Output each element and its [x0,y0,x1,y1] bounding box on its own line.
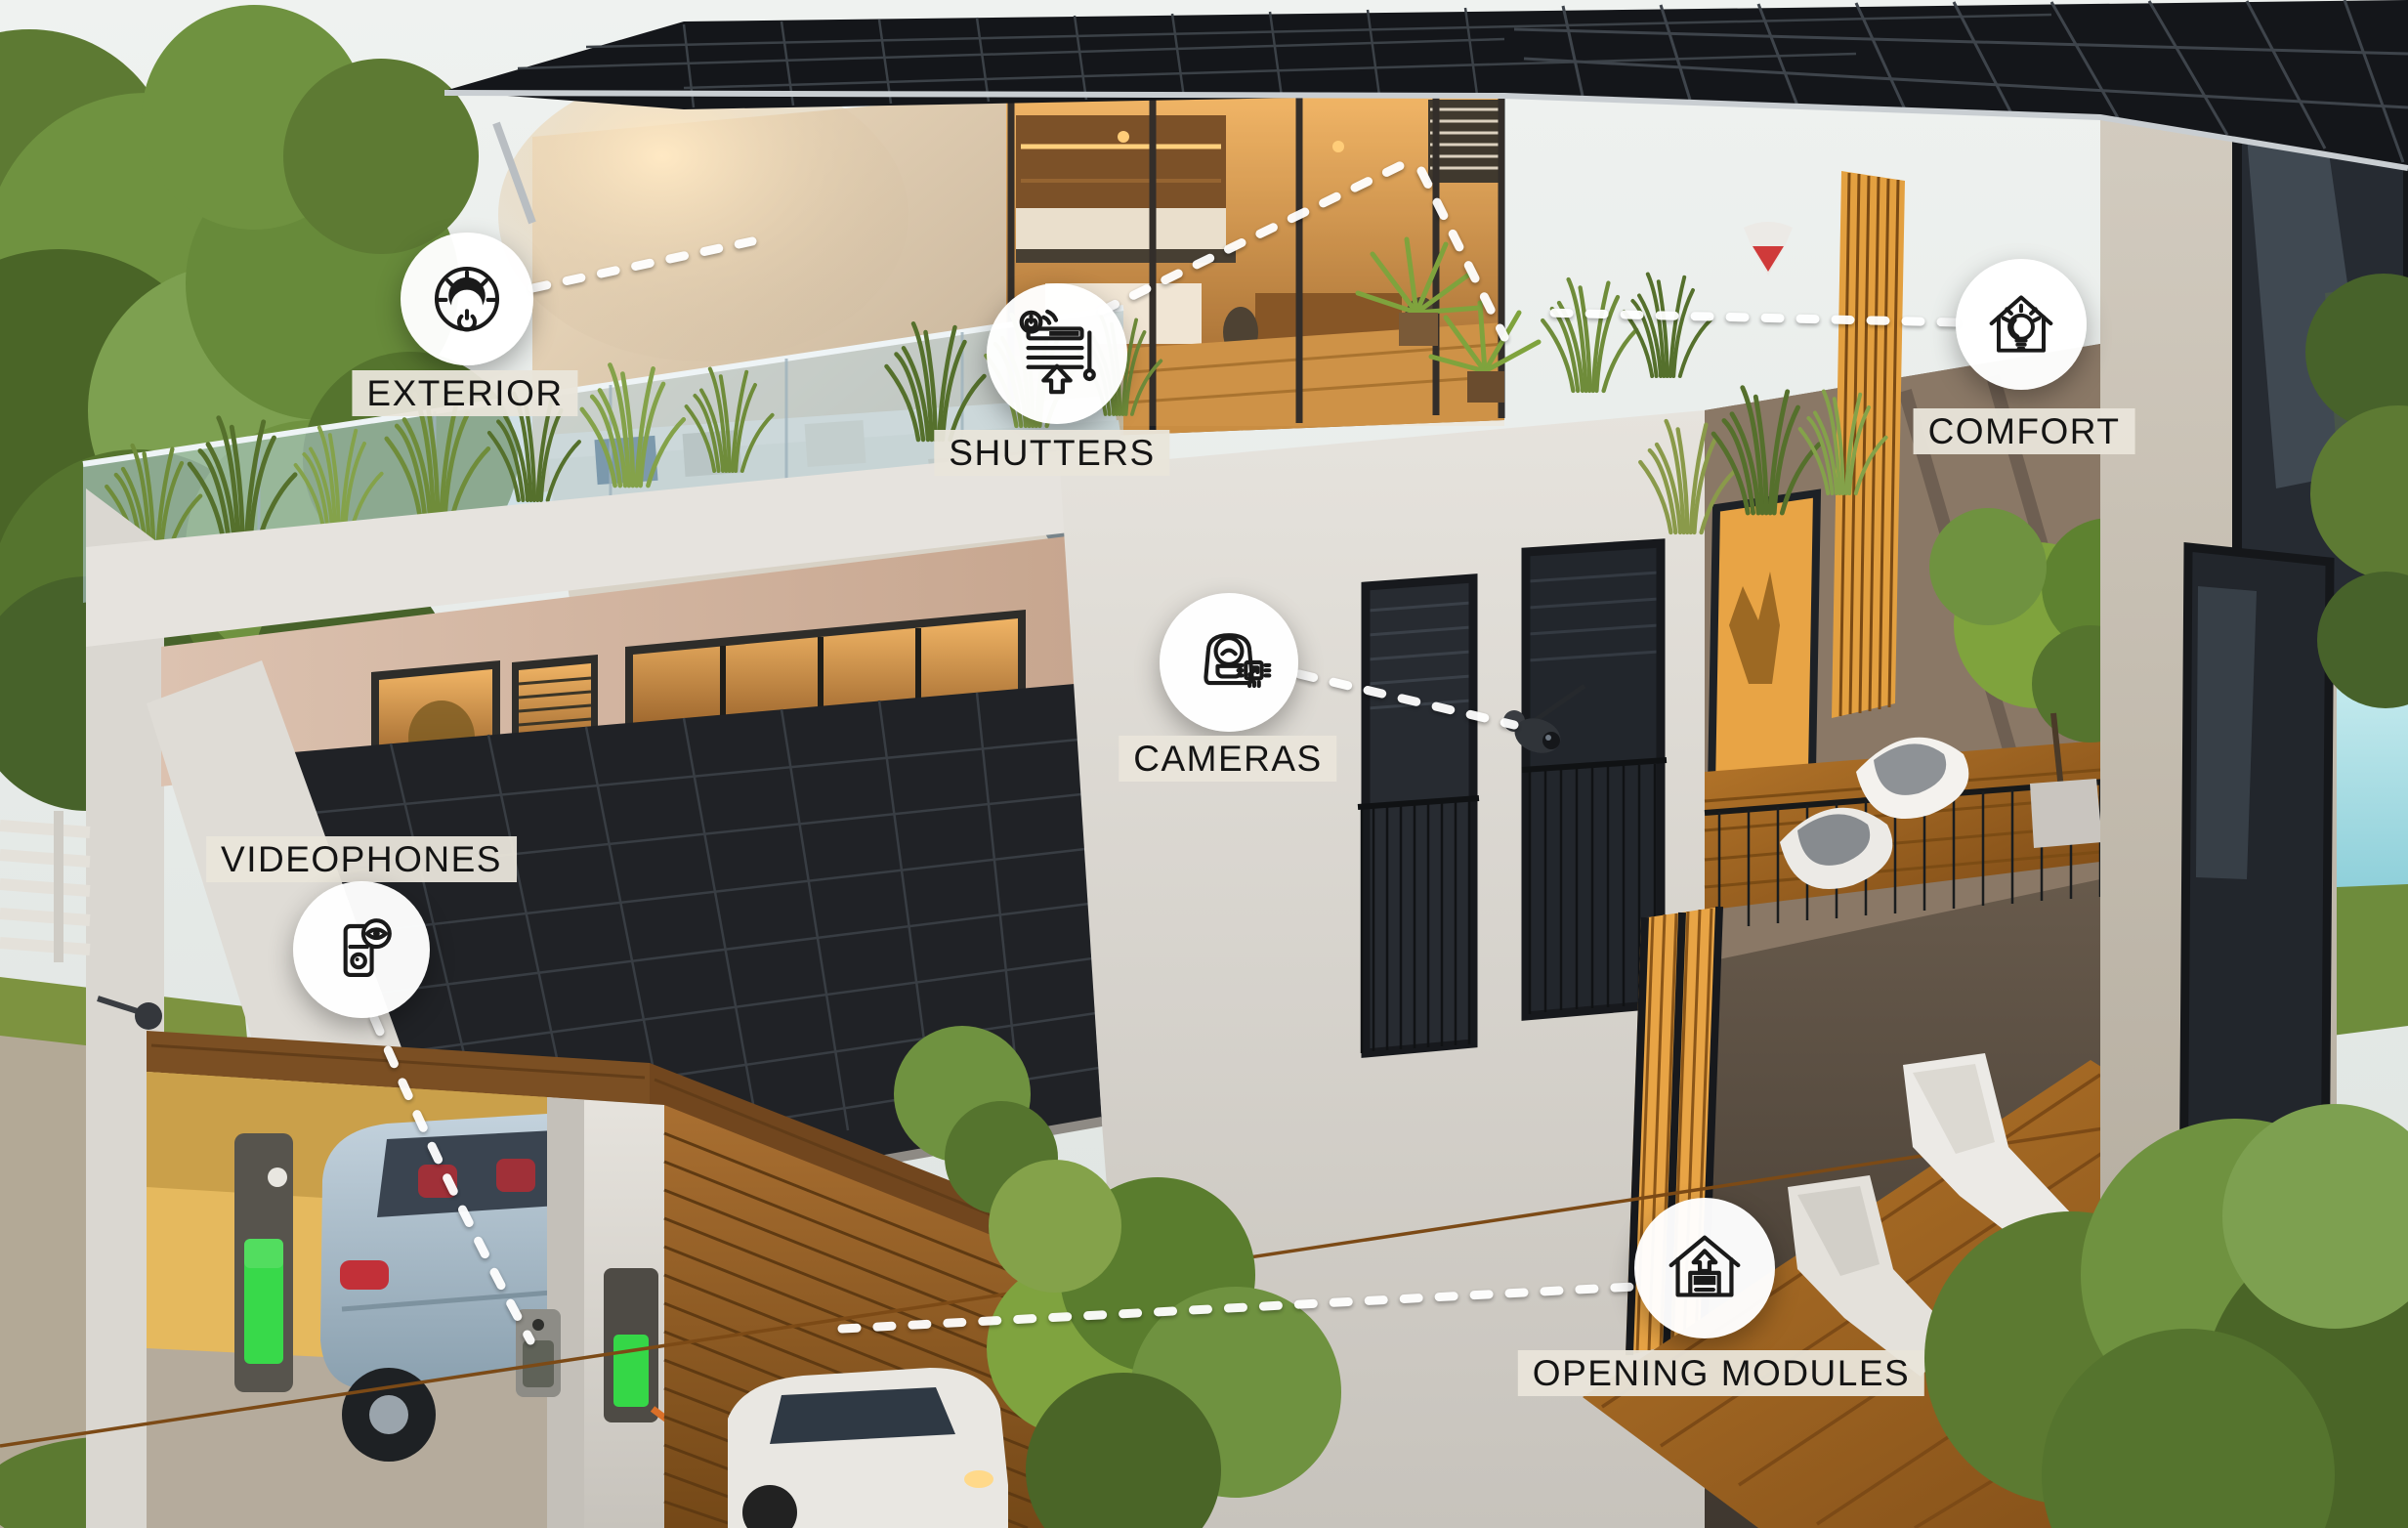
callout-exterior-label: EXTERIOR [352,370,577,416]
callout-exterior-badge[interactable] [401,233,533,365]
callout-opening-modules-badge[interactable] [1634,1198,1775,1338]
callout-opening-modules-label: OPENING MODULES [1518,1350,1924,1396]
ev-charger-left [234,1133,293,1392]
smart-home-diagram: EXTERIOR SHUTTERS CAMERAS [0,0,2408,1528]
dimmer-light-icon [421,253,513,345]
wood-slat-screen [1832,171,1905,718]
garage-door-open-icon [1657,1220,1753,1316]
white-car [728,1368,1008,1528]
balcony-door [1711,493,1817,789]
callout-shutters-label: SHUTTERS [934,430,1169,476]
security-camera-icon [1182,615,1276,709]
callout-cameras-label: CAMERAS [1119,736,1336,782]
callout-videophones-badge[interactable] [293,881,430,1018]
callout-cameras-badge[interactable] [1160,593,1298,732]
house-bulb-icon [1976,279,2066,369]
callout-videophones-label: VIDEOPHONES [206,836,517,882]
video-doorbell-eye-icon [315,903,408,997]
roller-shutter-icon [1009,306,1105,402]
callout-shutters-badge[interactable] [987,283,1127,424]
video-doorbell-device [516,1309,561,1397]
callout-comfort-badge[interactable] [1956,259,2087,390]
callout-comfort-label: COMFORT [1914,408,2135,454]
tall-window-1 [1358,578,1479,1053]
